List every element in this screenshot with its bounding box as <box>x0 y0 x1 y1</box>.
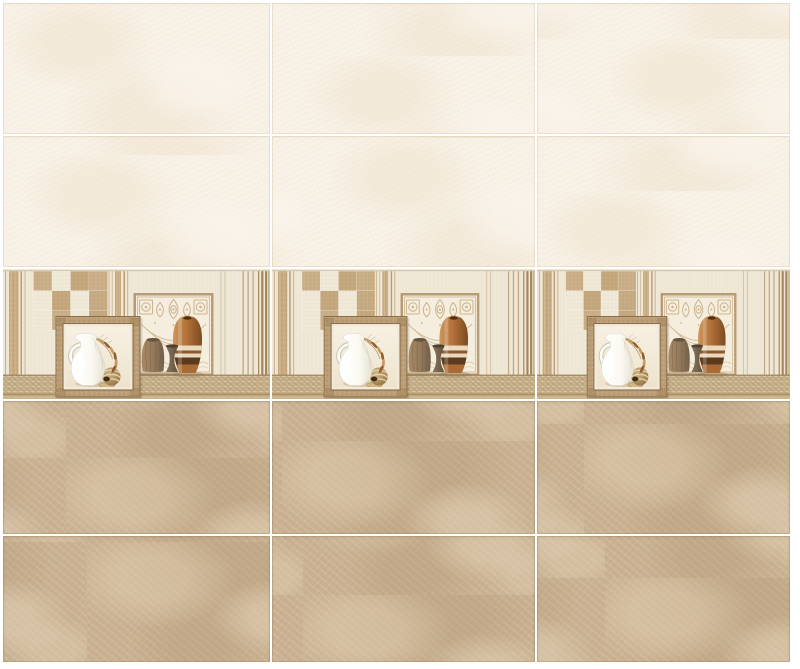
cream-tile <box>537 3 790 134</box>
cream-tile <box>272 136 535 267</box>
beige-tile <box>3 536 270 662</box>
cream-tile <box>3 136 270 267</box>
tile-wall <box>3 3 790 662</box>
tile-layout-image: { "canvas": { "width": 800, "height": 66… <box>0 0 800 669</box>
cream-tile <box>3 3 270 134</box>
decor-tile <box>272 269 535 399</box>
beige-tile <box>272 536 535 662</box>
beige-tile <box>537 401 790 534</box>
beige-tile <box>3 401 270 534</box>
beige-tile <box>272 401 535 534</box>
cream-tile <box>272 3 535 134</box>
decor-tile <box>3 269 270 399</box>
beige-tile <box>537 536 790 662</box>
decor-tile <box>537 269 790 399</box>
cream-tile <box>537 136 790 267</box>
